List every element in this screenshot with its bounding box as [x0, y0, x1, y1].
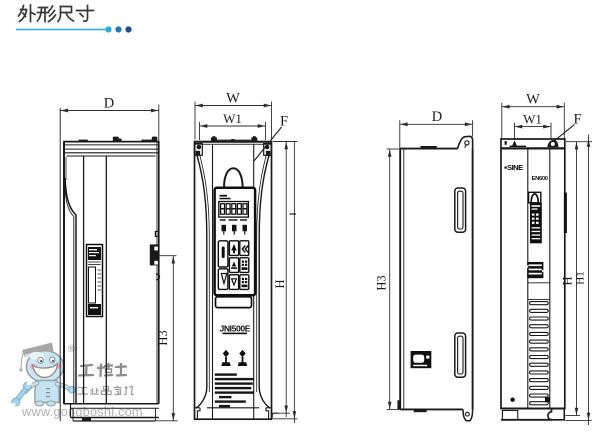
svg-text:W: W	[526, 92, 540, 108]
svg-text:H1: H1	[575, 271, 587, 284]
svg-text:JNI500E: JNI500E	[219, 324, 250, 334]
svg-text:H3: H3	[374, 275, 388, 290]
svg-text:H: H	[273, 279, 287, 288]
svg-text:W1: W1	[223, 111, 242, 126]
svg-text:W: W	[226, 91, 240, 107]
svg-text:H3: H3	[156, 330, 170, 345]
svg-text:EN600: EN600	[532, 176, 548, 182]
svg-text:SINE: SINE	[507, 163, 523, 172]
svg-text:®: ®	[68, 344, 76, 355]
svg-text:D: D	[432, 109, 442, 125]
svg-text:H: H	[561, 276, 575, 285]
svg-text:D: D	[104, 96, 114, 112]
svg-text:W1: W1	[523, 112, 542, 127]
svg-text:F: F	[573, 112, 581, 128]
svg-text:www.gongboshi.com: www.gongboshi.com	[21, 404, 143, 419]
